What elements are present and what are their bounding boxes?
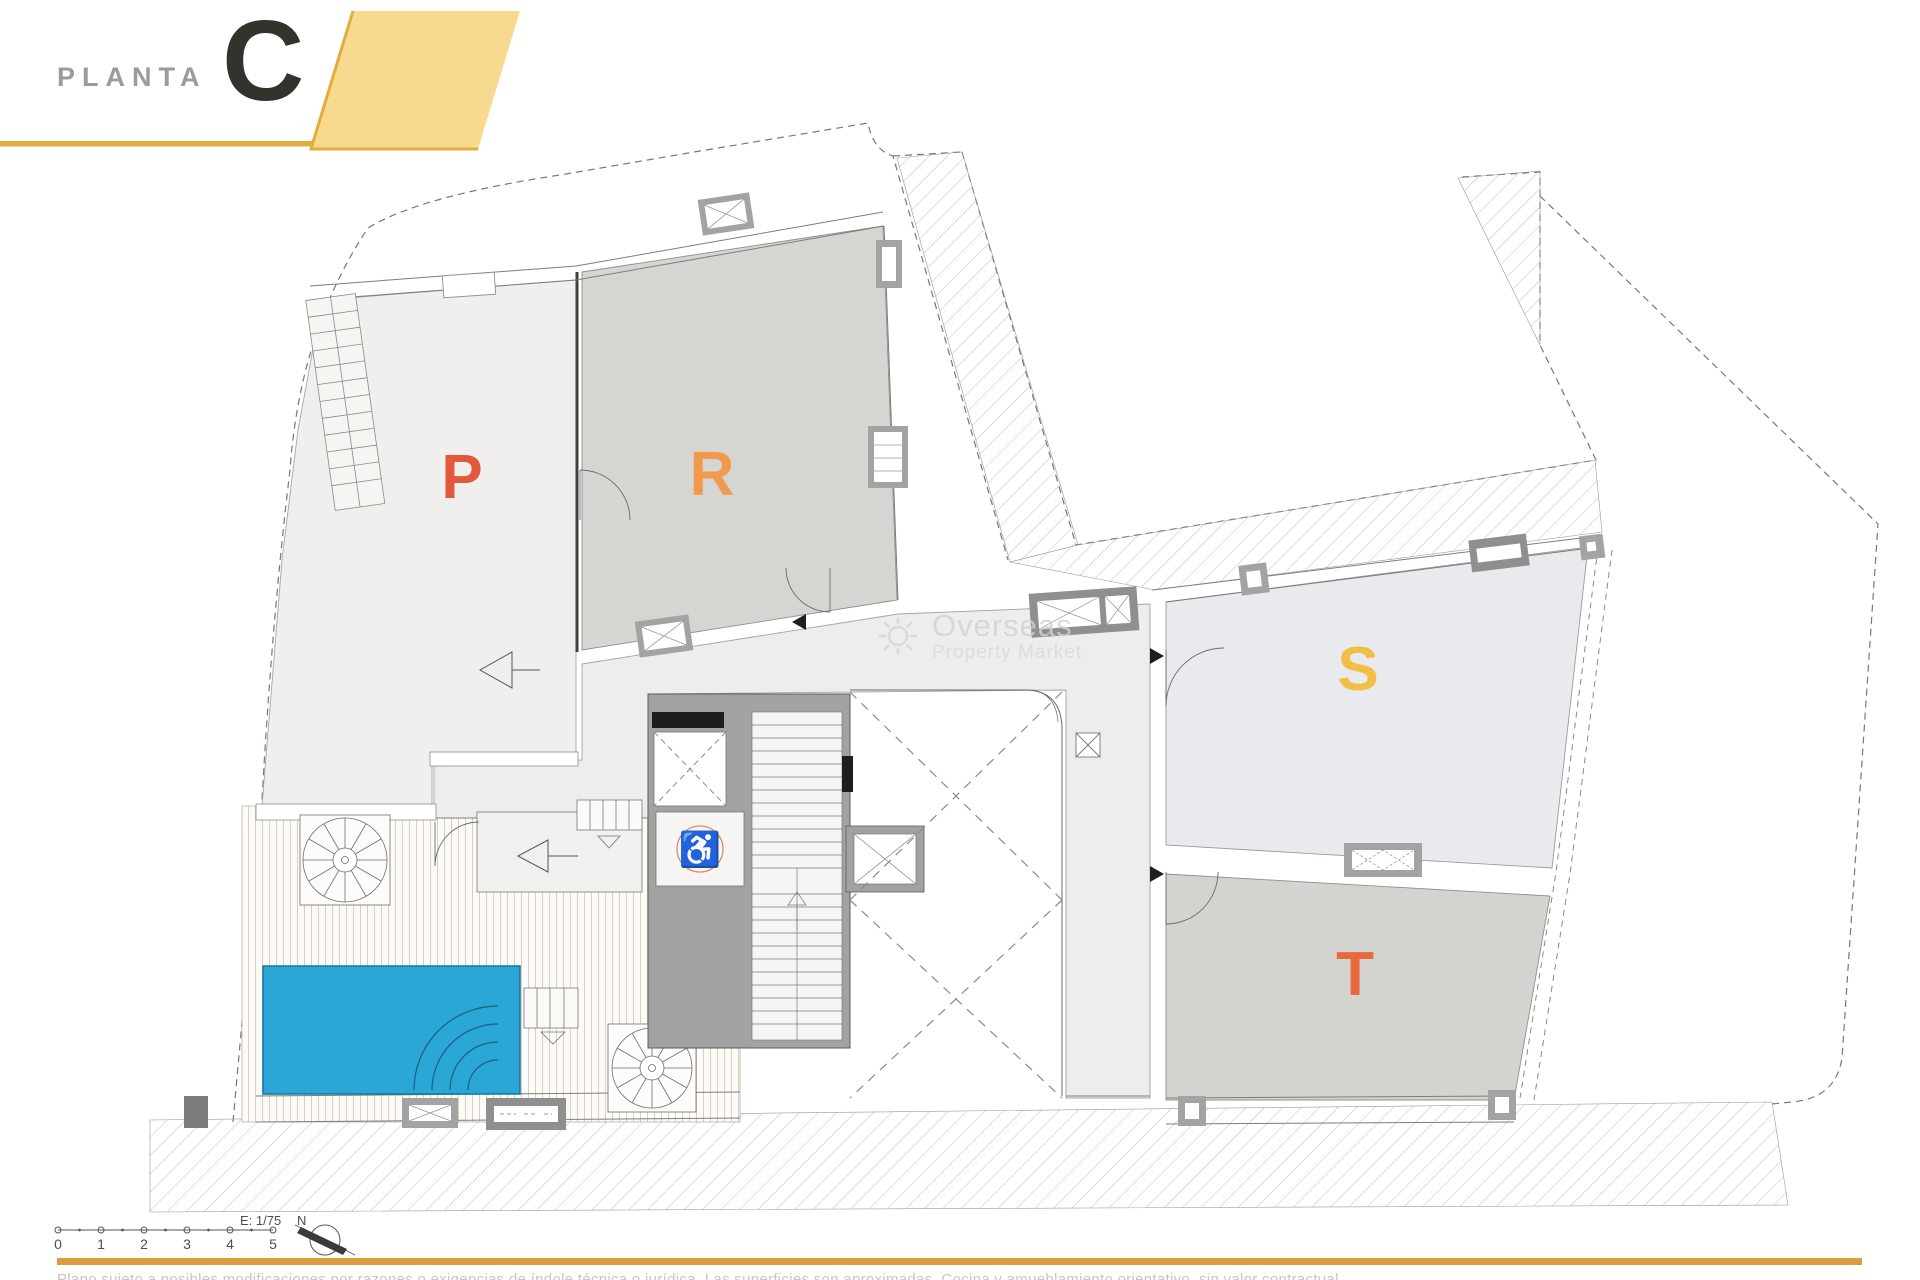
header-underline <box>0 141 312 147</box>
core-wall-dark <box>652 712 724 728</box>
window-deck-bottom-1 <box>402 1098 458 1128</box>
window-t-bottom-2 <box>1488 1090 1516 1120</box>
window-t-bottom-1 <box>1178 1096 1206 1126</box>
scale-label: E: 1/75 <box>240 1213 281 1228</box>
door-arrow-3 <box>1150 866 1164 882</box>
area-label-t: T <box>1336 940 1374 1009</box>
spiral-staircase-1 <box>300 815 390 905</box>
disclaimer-text: Plano sujeto a posibles modificaciones p… <box>57 1271 1343 1280</box>
plan-word: PLANTA <box>57 62 207 93</box>
elevator-core: ♿ <box>648 694 924 1048</box>
boundary-post-sw <box>184 1096 208 1128</box>
area-label-s: S <box>1337 635 1378 704</box>
window-r-right-small <box>876 240 902 288</box>
boundary-post-ne <box>1579 534 1606 561</box>
room-p <box>262 280 576 806</box>
elevator-shaft-2 <box>846 826 924 892</box>
door-arrow-2 <box>1150 648 1164 664</box>
floor-plan-drawing: ♿ <box>0 0 1920 1280</box>
window-s-t-wall <box>1344 843 1422 877</box>
footer-rule <box>57 1258 1862 1265</box>
scale-tick-5: 5 <box>269 1236 277 1252</box>
scale-tick-2: 2 <box>140 1236 148 1252</box>
north-arrow-icon <box>295 1225 355 1255</box>
window-p-top <box>442 272 495 298</box>
scale-tick-1: 1 <box>97 1236 105 1252</box>
wheelchair-icon: ♿ <box>679 830 721 869</box>
room-s <box>1166 547 1588 868</box>
window-r-right-large <box>868 426 908 488</box>
window-hall-top <box>1029 586 1140 637</box>
window-deck-bottom-2 <box>486 1098 566 1130</box>
scale-tick-3: 3 <box>183 1236 191 1252</box>
window-r-top <box>698 192 755 235</box>
staircase <box>752 712 842 1040</box>
scale-tick-4: 4 <box>226 1236 234 1252</box>
floor-plan-page: ♿ <box>0 0 1920 1280</box>
window-hall-left <box>635 614 693 657</box>
north-label: N <box>297 1213 306 1228</box>
area-label-r: R <box>690 440 735 509</box>
area-label-p: P <box>441 443 482 512</box>
room-r <box>582 226 897 650</box>
window-s-top-small <box>1238 562 1269 595</box>
void-cross-bracing <box>850 692 1062 1098</box>
scale-tick-0: 0 <box>54 1236 62 1252</box>
void-area <box>850 690 1062 1098</box>
vent-corridor <box>1076 733 1100 757</box>
floor-letter: C <box>222 0 304 127</box>
core-wall-dark-2 <box>842 756 853 792</box>
